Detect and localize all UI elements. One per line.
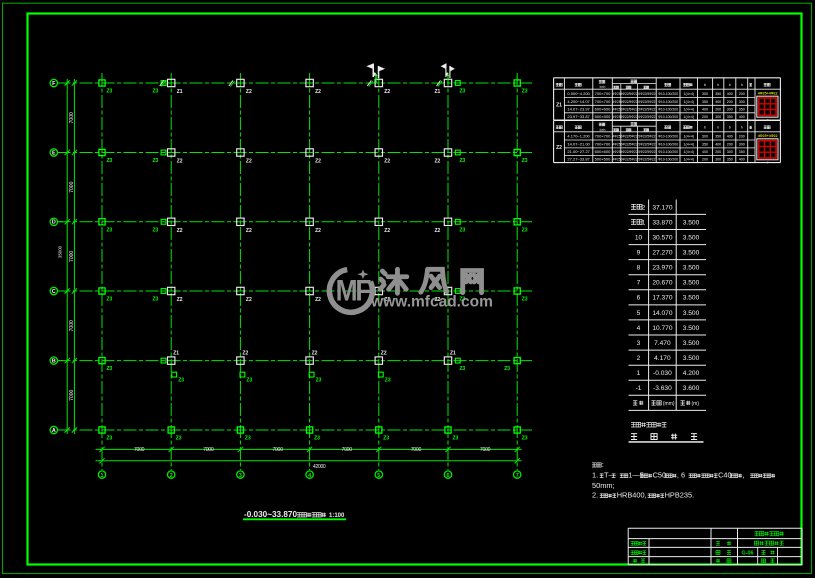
svg-text:-0.030: -0.030 [653, 370, 672, 377]
svg-text:1:100: 1:100 [329, 513, 345, 519]
svg-text:300: 300 [715, 158, 721, 162]
svg-text:Z3: Z3 [522, 227, 528, 233]
svg-text:50mm;: 50mm; [592, 481, 615, 490]
svg-text:1(4×4): 1(4×4) [684, 158, 695, 162]
svg-text:5Φ22/5Φ22: 5Φ22/5Φ22 [621, 158, 638, 162]
svg-text:200: 200 [715, 150, 721, 154]
svg-text:42000: 42000 [313, 464, 326, 470]
svg-text:Z2: Z2 [384, 89, 390, 95]
svg-text:400: 400 [739, 158, 745, 162]
svg-text:Z2: Z2 [177, 297, 183, 303]
svg-text:Z2: Z2 [435, 159, 441, 165]
svg-text:b: b [729, 83, 731, 87]
svg-text:23.970: 23.970 [652, 265, 673, 272]
svg-text:b×h: b×h [600, 85, 606, 89]
svg-text:D: D [52, 220, 56, 226]
svg-text:3.500: 3.500 [683, 310, 700, 317]
svg-text:3.500: 3.500 [683, 340, 700, 347]
svg-text:7000: 7000 [342, 447, 353, 453]
svg-text:5Φ22/5Φ22: 5Φ22/5Φ22 [638, 158, 655, 162]
svg-text:Z2: Z2 [315, 228, 321, 234]
svg-text:3.500: 3.500 [683, 325, 700, 332]
svg-text:6: 6 [637, 295, 641, 302]
svg-text:2: 2 [170, 473, 173, 479]
svg-text:Z3: Z3 [178, 378, 184, 384]
svg-text:8: 8 [637, 265, 641, 272]
svg-text:5Φ22/5Φ22: 5Φ22/5Φ22 [638, 115, 655, 119]
svg-text:Z3: Z3 [460, 89, 466, 95]
svg-text:27.27~33.87: 27.27~33.87 [567, 157, 590, 162]
svg-text:G-06: G-06 [742, 551, 754, 557]
svg-text:350: 350 [739, 108, 745, 112]
svg-text:7000: 7000 [69, 251, 75, 262]
svg-text:5Φ22/5Φ22: 5Φ22/5Φ22 [621, 142, 638, 146]
svg-text:1: 1 [637, 370, 641, 377]
svg-text:3: 3 [239, 473, 242, 479]
svg-text:5: 5 [637, 310, 641, 317]
svg-text:700×700: 700×700 [595, 133, 611, 138]
svg-text:h: h [717, 83, 719, 87]
svg-text:Z2: Z2 [242, 351, 248, 357]
svg-text:200: 200 [739, 92, 745, 96]
svg-text:4Φ25: 4Φ25 [612, 115, 620, 119]
svg-text:4Φ25: 4Φ25 [612, 108, 620, 112]
svg-text:3.500: 3.500 [683, 250, 700, 257]
svg-text:5Φ22/5Φ22: 5Φ22/5Φ22 [621, 150, 638, 154]
svg-text:Z3: Z3 [316, 378, 322, 384]
svg-text:400: 400 [727, 134, 733, 138]
svg-text:27.270: 27.270 [652, 250, 673, 257]
svg-text:7.470: 7.470 [654, 340, 671, 347]
svg-text:C50: C50 [653, 471, 667, 480]
svg-text:Z2: Z2 [435, 228, 441, 234]
svg-text:200: 200 [715, 108, 721, 112]
svg-text:5Φ22/5Φ22: 5Φ22/5Φ22 [638, 100, 655, 104]
svg-text:7000: 7000 [272, 447, 283, 453]
svg-text:7000: 7000 [69, 181, 75, 192]
svg-text:1(4×4): 1(4×4) [684, 92, 695, 96]
svg-text:Z2: Z2 [384, 159, 390, 165]
svg-text:Φ10-100/200: Φ10-100/200 [658, 115, 678, 119]
svg-text:700×700: 700×700 [595, 141, 611, 146]
svg-text:E: E [52, 150, 56, 156]
svg-text:www.mfcad.com: www.mfcad.com [370, 294, 493, 311]
svg-text:Z3: Z3 [385, 378, 391, 384]
svg-text:Z2: Z2 [315, 297, 321, 303]
svg-text:5Φ22/5Φ22: 5Φ22/5Φ22 [638, 134, 655, 138]
svg-text:1.: 1. [592, 471, 598, 480]
svg-text:400: 400 [739, 115, 745, 119]
svg-text:400: 400 [702, 108, 708, 112]
svg-text:Z2: Z2 [384, 228, 390, 234]
svg-text:0.000~4.200: 0.000~4.200 [567, 91, 590, 96]
svg-text:Z1: Z1 [173, 351, 179, 357]
svg-text:7000: 7000 [69, 112, 75, 123]
svg-text:20.670: 20.670 [652, 280, 673, 287]
svg-text:300: 300 [715, 115, 721, 119]
svg-text:4Φ25: 4Φ25 [612, 150, 620, 154]
svg-text:b: b [704, 83, 706, 87]
svg-text:h: h [741, 126, 743, 130]
svg-text:4Φ25+4Φ22: 4Φ25+4Φ22 [758, 91, 778, 95]
svg-text:1: 1 [642, 219, 646, 226]
svg-text:3: 3 [637, 340, 641, 347]
svg-text:Z3: Z3 [460, 158, 466, 164]
svg-text:14.07~23.97: 14.07~23.97 [567, 107, 590, 112]
svg-text:200: 200 [727, 100, 733, 104]
svg-text:Z3: Z3 [522, 436, 528, 442]
svg-text:200: 200 [702, 158, 708, 162]
svg-text:Z3: Z3 [522, 297, 528, 303]
svg-text:HPB235.: HPB235. [665, 491, 695, 500]
svg-text:1(4×4): 1(4×4) [684, 108, 695, 112]
svg-text:35000: 35000 [58, 245, 63, 258]
svg-text:Φ10-100/200: Φ10-100/200 [658, 92, 678, 96]
svg-text:700×700: 700×700 [595, 99, 611, 104]
svg-text:Z2: Z2 [312, 351, 318, 357]
svg-text:Z3: Z3 [246, 378, 252, 384]
svg-text:(mm): (mm) [663, 401, 675, 407]
svg-text:, 6: , 6 [677, 471, 685, 480]
svg-text:4: 4 [308, 473, 311, 479]
svg-text:Φ10-100/200: Φ10-100/200 [658, 134, 678, 138]
svg-text:Z3: Z3 [176, 436, 182, 442]
svg-text:600×600: 600×600 [595, 149, 611, 154]
svg-text:5Φ22/5Φ22: 5Φ22/5Φ22 [638, 92, 655, 96]
svg-text:350: 350 [739, 150, 745, 154]
svg-text:Z3: Z3 [245, 436, 251, 442]
svg-text:200: 200 [739, 134, 745, 138]
svg-text:400: 400 [715, 100, 721, 104]
svg-text:MF: MF [336, 273, 372, 307]
svg-text:Z2: Z2 [246, 89, 252, 95]
svg-text:Z2: Z2 [246, 159, 252, 165]
svg-text:Z1: Z1 [450, 351, 456, 357]
svg-text:Z1: Z1 [177, 89, 183, 95]
svg-text:Z3: Z3 [107, 158, 113, 164]
svg-text:Z2: Z2 [177, 228, 183, 234]
svg-text:Z3: Z3 [383, 436, 389, 442]
svg-text:Z3: Z3 [153, 158, 159, 164]
svg-text:4Φ25+4Φ22: 4Φ25+4Φ22 [758, 134, 778, 138]
svg-text:Z3: Z3 [504, 366, 510, 372]
svg-text:-1: -1 [636, 385, 642, 392]
svg-text:3.500: 3.500 [683, 219, 700, 226]
svg-text:C: C [52, 289, 56, 295]
svg-text:500×500: 500×500 [595, 157, 611, 162]
svg-text:1(4×4): 1(4×4) [684, 115, 695, 119]
svg-text:300: 300 [702, 92, 708, 96]
svg-text:23.97~33.87: 23.97~33.87 [567, 114, 590, 119]
svg-text:4Φ25: 4Φ25 [612, 142, 620, 146]
svg-text:7: 7 [516, 473, 519, 479]
svg-text:33.870: 33.870 [652, 219, 673, 226]
svg-text:1: 1 [101, 473, 104, 479]
svg-text:1(4×4): 1(4×4) [684, 142, 695, 146]
svg-text:Φ10-100/200: Φ10-100/200 [658, 142, 678, 146]
svg-text:Z3: Z3 [153, 297, 159, 303]
svg-text:14.07~21.00: 14.07~21.00 [567, 141, 590, 146]
svg-text:Z2: Z2 [381, 351, 387, 357]
svg-text:200: 200 [727, 142, 733, 146]
svg-text:37.170: 37.170 [652, 204, 673, 211]
svg-text:Z3: Z3 [460, 366, 466, 372]
svg-text:14.070: 14.070 [652, 310, 673, 317]
svg-text:350: 350 [715, 134, 721, 138]
svg-text:400: 400 [702, 150, 708, 154]
svg-text:350: 350 [702, 100, 708, 104]
svg-text:400: 400 [727, 92, 733, 96]
svg-text:400: 400 [715, 142, 721, 146]
svg-text:4: 4 [637, 325, 641, 332]
svg-text:3.600: 3.600 [683, 385, 700, 392]
svg-text:Z1: Z1 [556, 103, 562, 109]
svg-text:A: A [52, 428, 56, 434]
svg-text:350: 350 [702, 142, 708, 146]
svg-text:Z2: Z2 [315, 159, 321, 165]
svg-text:Z3: Z3 [522, 89, 528, 95]
svg-text:7000: 7000 [203, 447, 214, 453]
svg-text:h: h [717, 126, 719, 130]
svg-text:3.500: 3.500 [683, 355, 700, 362]
svg-text:4.170: 4.170 [654, 355, 671, 362]
svg-text:5Φ22/5Φ22: 5Φ22/5Φ22 [638, 150, 655, 154]
svg-text:Z3: Z3 [153, 89, 159, 95]
svg-text:Φ10-100/200: Φ10-100/200 [658, 100, 678, 104]
svg-text:Z3: Z3 [453, 436, 459, 442]
svg-text:4.170~1.200: 4.170~1.200 [567, 133, 590, 138]
svg-text:6: 6 [447, 473, 450, 479]
svg-text:(m): (m) [692, 401, 700, 407]
svg-text:Z3: Z3 [460, 227, 466, 233]
svg-text:-0.030~33.870: -0.030~33.870 [244, 510, 297, 519]
svg-text:Z3: Z3 [522, 158, 528, 164]
svg-text:Z3: Z3 [107, 297, 113, 303]
svg-text:7000: 7000 [411, 447, 422, 453]
svg-text:7: 7 [637, 280, 641, 287]
svg-text:3.500: 3.500 [683, 265, 700, 272]
svg-text:Φ10-100/200: Φ10-100/200 [658, 150, 678, 154]
svg-text:600×600: 600×600 [595, 107, 611, 112]
svg-text:Z2: Z2 [246, 228, 252, 234]
svg-text:30.570: 30.570 [652, 234, 673, 241]
svg-text:Z3: Z3 [107, 436, 113, 442]
svg-text:3.500: 3.500 [683, 234, 700, 241]
svg-text:4Φ25: 4Φ25 [612, 158, 620, 162]
svg-text:Φ10-100/200: Φ10-100/200 [658, 108, 678, 112]
svg-text:4Φ25: 4Φ25 [612, 92, 620, 96]
svg-text:Z1: Z1 [435, 89, 441, 95]
svg-text:5: 5 [377, 473, 380, 479]
svg-text:Z2: Z2 [246, 297, 252, 303]
svg-text:3.500: 3.500 [683, 280, 700, 287]
svg-text:21.00~27.27: 21.00~27.27 [567, 149, 590, 154]
svg-text:5Φ22/5Φ22: 5Φ22/5Φ22 [621, 100, 638, 104]
svg-text:7000: 7000 [69, 390, 75, 401]
svg-text:2: 2 [642, 204, 646, 211]
svg-text:4Φ25: 4Φ25 [612, 134, 620, 138]
svg-text:C40: C40 [718, 471, 732, 480]
svg-text:1(4×4): 1(4×4) [684, 100, 695, 104]
svg-text:350: 350 [727, 115, 733, 119]
svg-text:Z2: Z2 [177, 159, 183, 165]
svg-text:300: 300 [739, 142, 745, 146]
svg-text:10.770: 10.770 [652, 325, 673, 332]
svg-text:5Φ22/5Φ22: 5Φ22/5Φ22 [638, 108, 655, 112]
svg-text:4.200~14.07: 4.200~14.07 [567, 99, 590, 104]
svg-text:-3.630: -3.630 [653, 385, 672, 392]
svg-text:Φ10-100/200: Φ10-100/200 [658, 158, 678, 162]
svg-text:5Φ22/5Φ22: 5Φ22/5Φ22 [621, 92, 638, 96]
svg-text:10: 10 [635, 234, 643, 241]
svg-text:5Φ22/5Φ22: 5Φ22/5Φ22 [621, 134, 638, 138]
svg-text:1(4×4): 1(4×4) [684, 150, 695, 154]
svg-text:Z2: Z2 [315, 89, 321, 95]
svg-text::: : [602, 460, 604, 469]
svg-text:HRB400,: HRB400, [617, 491, 647, 500]
svg-text:7000: 7000 [134, 447, 145, 453]
svg-text:5Φ22/5Φ22: 5Φ22/5Φ22 [621, 108, 638, 112]
svg-text:350: 350 [727, 158, 733, 162]
svg-text:5Φ22/5Φ22: 5Φ22/5Φ22 [638, 142, 655, 146]
svg-text:500×500: 500×500 [595, 114, 611, 119]
svg-text:Z3: Z3 [314, 436, 320, 442]
svg-text:200: 200 [702, 115, 708, 119]
svg-text:7000: 7000 [69, 320, 75, 331]
svg-text:T—: T— [604, 471, 617, 480]
svg-text:b: b [729, 126, 731, 130]
svg-text:,: , [743, 471, 745, 480]
svg-text:B: B [52, 359, 56, 365]
svg-text:b: b [704, 126, 706, 130]
svg-text:4Φ25: 4Φ25 [612, 100, 620, 104]
svg-text:4.200: 4.200 [683, 370, 700, 377]
svg-text:3.500: 3.500 [683, 295, 700, 302]
svg-text:700×700: 700×700 [595, 91, 611, 96]
svg-text:300: 300 [739, 100, 745, 104]
svg-text:Z3: Z3 [153, 227, 159, 233]
svg-text:1(4×4): 1(4×4) [684, 134, 695, 138]
svg-text:Z3: Z3 [107, 89, 113, 95]
svg-text:5Φ22/5Φ22: 5Φ22/5Φ22 [621, 115, 638, 119]
svg-text:b×h: b×h [600, 128, 606, 132]
svg-text:300: 300 [702, 134, 708, 138]
svg-text:17.370: 17.370 [652, 295, 673, 302]
svg-text:h: h [741, 83, 743, 87]
svg-text:2.: 2. [592, 491, 598, 500]
svg-text:Z3: Z3 [107, 366, 113, 372]
svg-text:7000: 7000 [480, 447, 491, 453]
svg-text:300: 300 [727, 108, 733, 112]
svg-text:Z3: Z3 [107, 227, 113, 233]
svg-text:300: 300 [727, 150, 733, 154]
svg-text:Z2: Z2 [556, 145, 562, 151]
svg-text:350: 350 [715, 92, 721, 96]
svg-text:2: 2 [637, 355, 641, 362]
svg-text:9: 9 [637, 250, 641, 257]
